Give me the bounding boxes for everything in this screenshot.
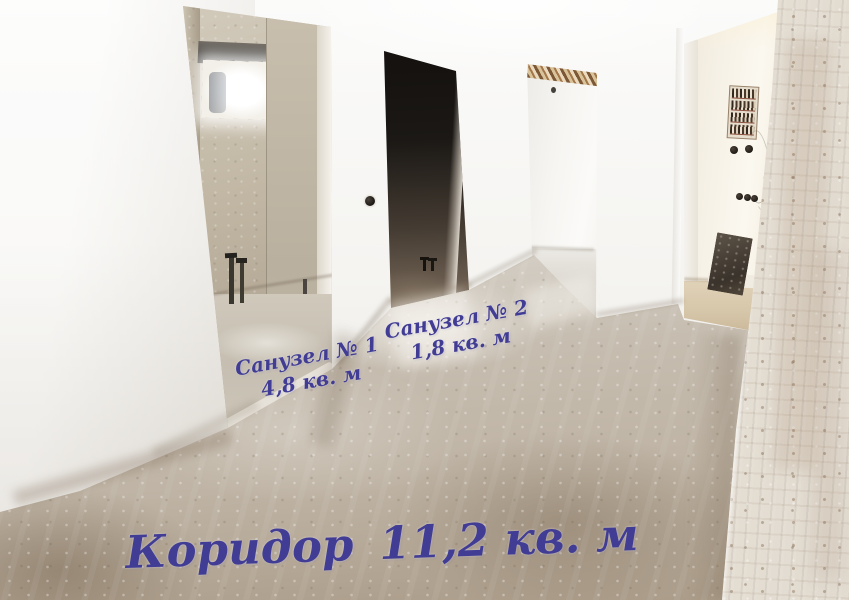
water-pipe <box>240 261 244 303</box>
ceiling <box>320 0 700 95</box>
corridor-area: 11,2 кв. м <box>378 507 639 572</box>
breaker-row <box>732 88 756 99</box>
apartment-interior-photo: Санузел № 1 4,8 кв. м Санузел № 2 1,8 кв… <box>0 0 849 600</box>
ceiling-outlet <box>551 87 556 93</box>
breaker-row <box>731 100 755 111</box>
bottle-silhouette <box>209 72 226 113</box>
socket-hole <box>744 194 751 201</box>
socket-hole <box>745 145 753 153</box>
pipe-stub <box>303 279 307 294</box>
water-pipe <box>229 257 234 304</box>
breaker-row <box>730 112 754 123</box>
socket-hole <box>730 146 738 154</box>
corridor-name: Коридор <box>125 517 355 581</box>
socket-hole <box>365 196 375 206</box>
pipe-stub <box>428 258 437 261</box>
brick-stain <box>812 250 842 580</box>
socket-hole <box>736 193 743 200</box>
socket-hole <box>751 195 758 202</box>
pipe-valve <box>236 258 247 263</box>
